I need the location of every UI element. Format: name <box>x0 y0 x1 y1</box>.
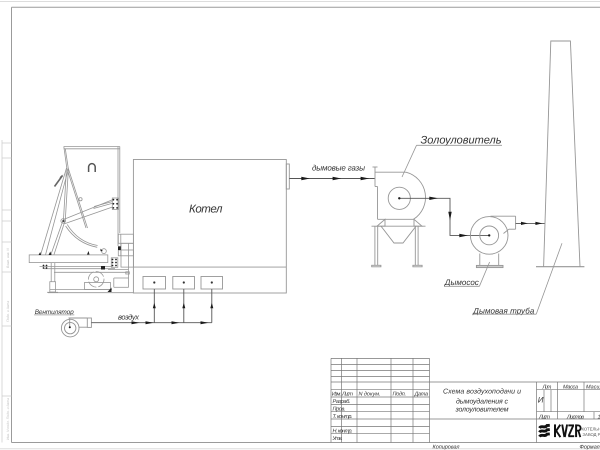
svg-text:дымоудаления с: дымоудаления с <box>456 397 509 405</box>
svg-text:Подп. и дата: Подп. и дата <box>6 301 10 322</box>
svg-text:Масштаб: Масштаб <box>586 383 600 390</box>
svg-text:Т. контр.: Т. контр. <box>333 414 353 420</box>
svg-text:И: И <box>538 396 544 405</box>
svg-text:дымовые газы: дымовые газы <box>312 163 365 172</box>
svg-text:Пров.: Пров. <box>333 407 346 413</box>
svg-text:Котел: Котел <box>189 204 223 216</box>
svg-text:N докум.: N докум. <box>359 392 381 398</box>
svg-text:Дымосос: Дымосос <box>444 278 479 287</box>
svg-text:Разраб.: Разраб. <box>333 398 351 405</box>
svg-text:воздух: воздух <box>118 312 139 321</box>
svg-text:Дата: Дата <box>414 392 429 398</box>
svg-text:Копировал: Копировал <box>433 444 460 450</box>
svg-text:Золоуловитель: Золоуловитель <box>421 134 502 146</box>
svg-text:Лист: Лист <box>341 392 353 398</box>
svg-text:золоуловителем: золоуловителем <box>455 407 509 414</box>
svg-text:Листов: Листов <box>566 414 584 420</box>
svg-text:ЗАВОД РОССИИ: ЗАВОД РОССИИ <box>583 432 600 437</box>
svg-text:Схема воздухоподачи и: Схема воздухоподачи и <box>443 388 521 396</box>
svg-text:Н. контр.: Н. контр. <box>333 429 353 435</box>
svg-text:Инв. N подл. Подп. и дата: Инв. N подл. Подп. и дата <box>6 398 10 440</box>
svg-text:Формат: Формат <box>580 444 600 450</box>
svg-text:Лит.: Лит. <box>542 384 552 390</box>
svg-text:Подп.: Подп. <box>393 392 407 398</box>
svg-text:Изм.: Изм. <box>332 392 342 398</box>
svg-text:Взам. инв. N: Взам. инв. N <box>6 248 10 268</box>
svg-text:КОТЕЛЬНЫЙ: КОТЕЛЬНЫЙ <box>582 426 600 431</box>
svg-text:Масса: Масса <box>563 384 578 390</box>
svg-text:Утв.: Утв. <box>332 436 343 442</box>
svg-text:Лист: Лист <box>538 414 550 420</box>
